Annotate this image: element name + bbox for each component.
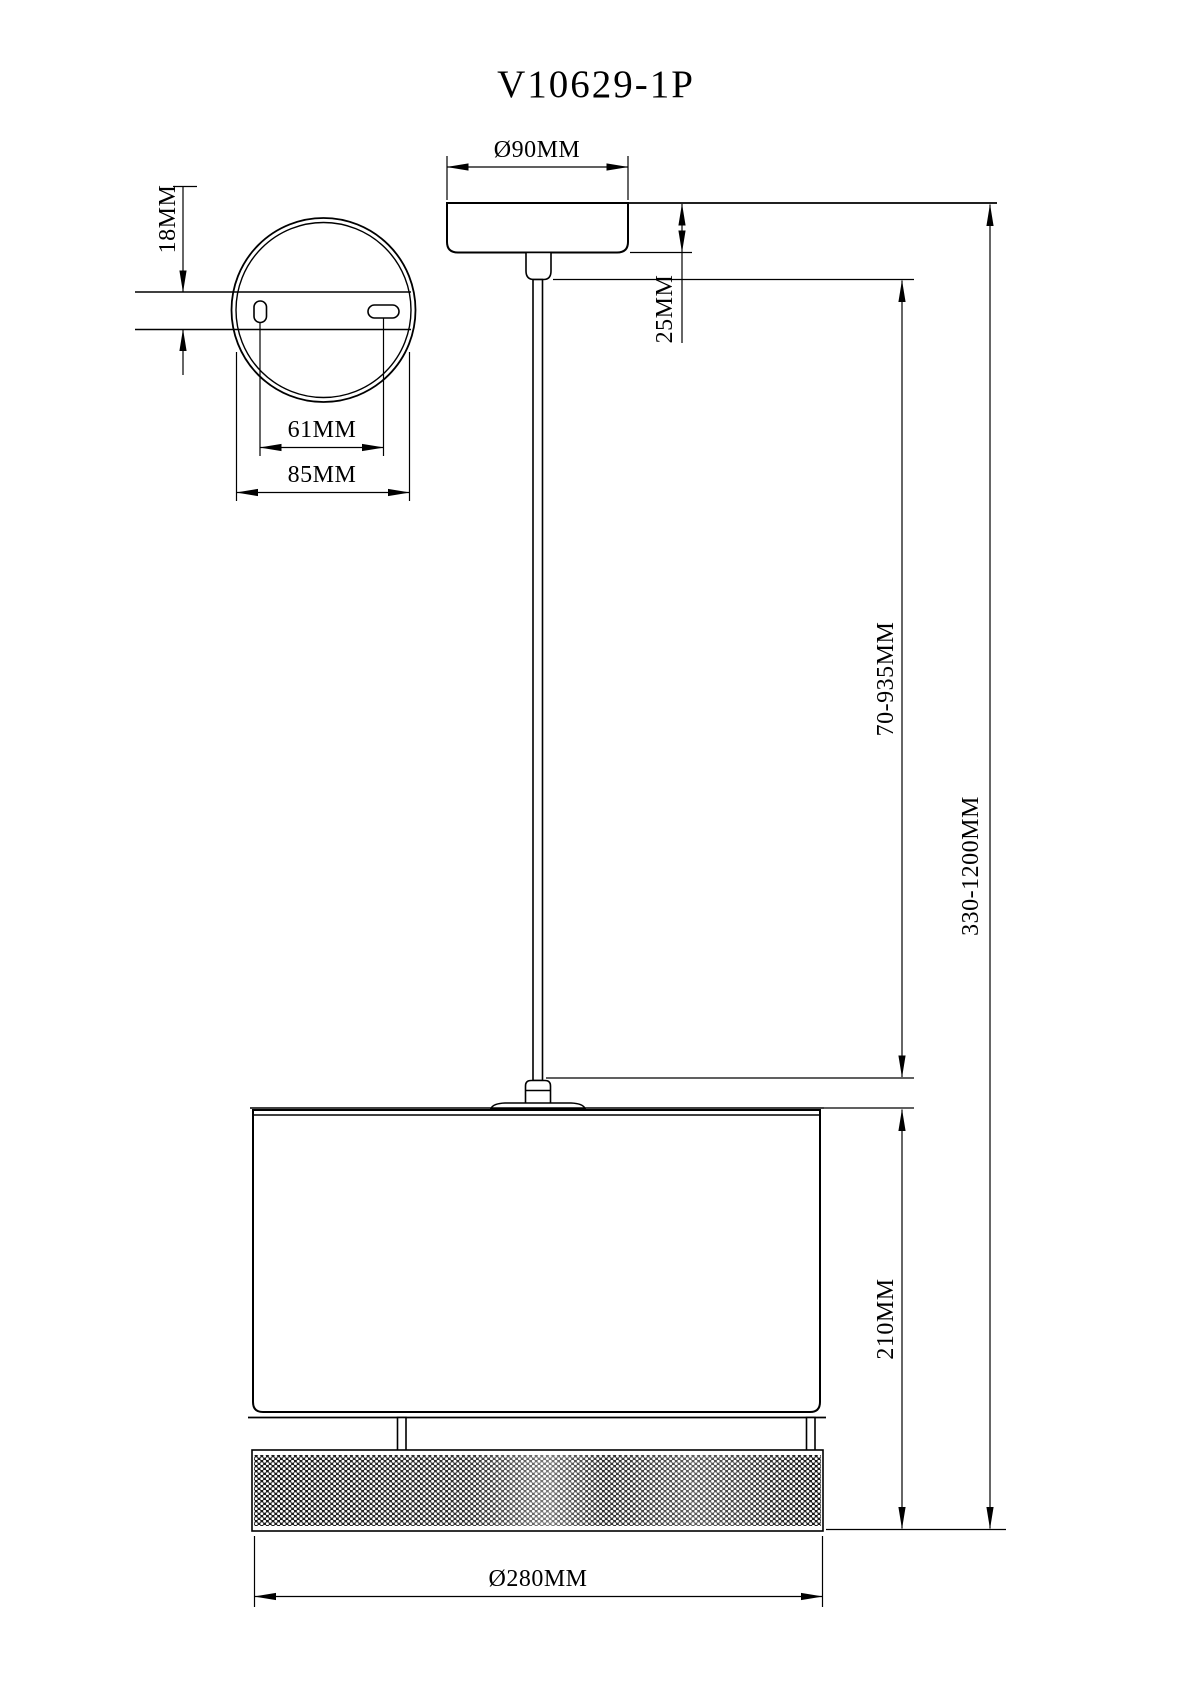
- dim-label-overall-drop-range: 330-1200MM: [958, 796, 984, 936]
- suspension-rod: [533, 280, 543, 1081]
- bottom-dimension: Ø280MM: [255, 1536, 823, 1607]
- dim-label-rod-drop-range: 70-935MM: [873, 622, 899, 737]
- dim-label-shade-diameter: Ø280MM: [488, 1566, 587, 1592]
- technical-drawing-page: V10629-1P 18MM 61MM 85MM Ø9: [0, 0, 1190, 1684]
- canopy-cord-grip: [526, 253, 551, 280]
- mounting-plate-detail: 18MM 61MM 85MM: [135, 185, 416, 501]
- rod-ferrule: [526, 1081, 551, 1107]
- canopy-body: [447, 203, 628, 253]
- dim-label-shade-height: 210MM: [873, 1278, 899, 1359]
- pendant-lamp-dimension-drawing: V10629-1P 18MM 61MM 85MM Ø9: [0, 0, 1190, 1684]
- dim-label-plate-thickness: 18MM: [155, 185, 181, 254]
- dim-label-canopy-diameter: Ø90MM: [494, 137, 581, 163]
- dim-label-plate-width: 85MM: [288, 462, 357, 488]
- plate-slot-right: [368, 305, 399, 318]
- dim-label-hole-spacing: 61MM: [288, 417, 357, 443]
- plate-keyhole-slot-left: [254, 301, 267, 323]
- diffuser-mesh-sheen: [254, 1455, 821, 1526]
- ceiling-canopy: Ø90MM 25MM: [447, 137, 997, 343]
- shade-drum: [253, 1110, 820, 1412]
- diffuser-spacer-right: [807, 1418, 816, 1451]
- drawing-title: V10629-1P: [497, 63, 695, 106]
- dim-label-canopy-height: 25MM: [652, 275, 678, 344]
- diffuser-spacer-left: [398, 1418, 407, 1451]
